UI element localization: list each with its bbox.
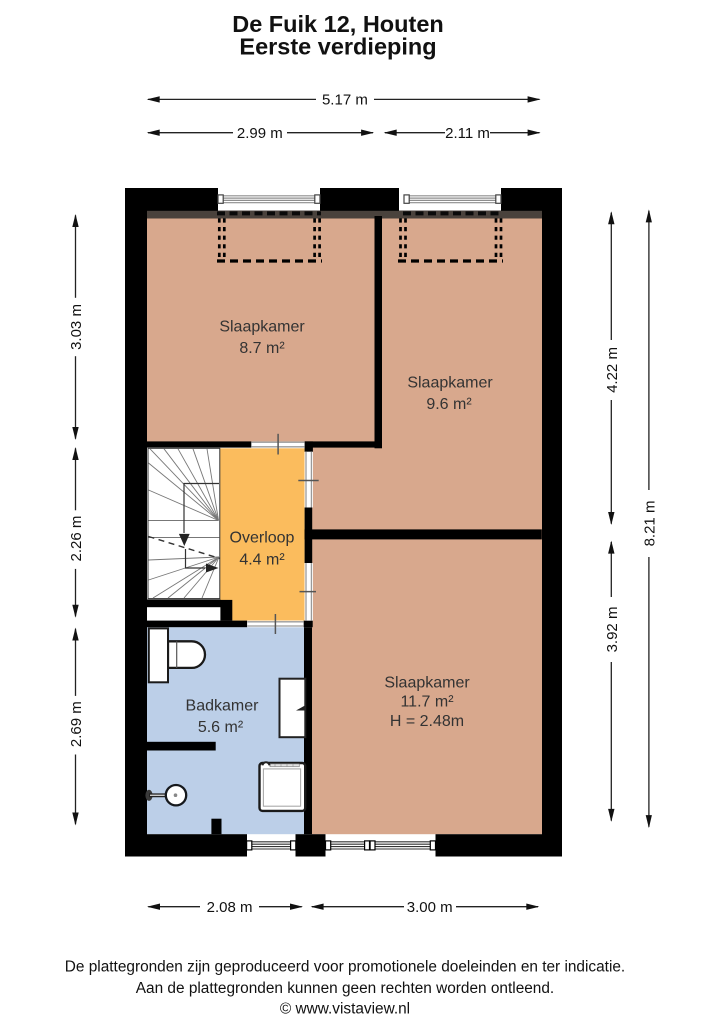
svg-text:3.92 m: 3.92 m bbox=[604, 607, 621, 653]
svg-text:9.6 m²: 9.6 m² bbox=[426, 396, 472, 413]
svg-text:4.4 m²: 4.4 m² bbox=[239, 552, 285, 569]
svg-text:Badkamer: Badkamer bbox=[186, 698, 260, 715]
svg-text:3.03 m: 3.03 m bbox=[68, 304, 85, 350]
svg-text:2.69 m: 2.69 m bbox=[68, 701, 85, 747]
svg-text:11.7 m²: 11.7 m² bbox=[400, 694, 454, 711]
svg-text:Slaapkamer: Slaapkamer bbox=[407, 375, 493, 392]
svg-text:8.7 m²: 8.7 m² bbox=[239, 340, 285, 357]
svg-text:H = 2.48m: H = 2.48m bbox=[390, 713, 464, 730]
svg-text:2.99 m: 2.99 m bbox=[237, 125, 283, 142]
svg-text:8.21 m: 8.21 m bbox=[641, 501, 658, 547]
svg-text:3.00 m: 3.00 m bbox=[407, 899, 453, 916]
svg-text:Aan de plattegronden kunnen ge: Aan de plattegronden kunnen geen rechten… bbox=[136, 980, 554, 997]
svg-text:© www.vistaview.nl: © www.vistaview.nl bbox=[280, 1001, 410, 1018]
svg-text:2.26 m: 2.26 m bbox=[68, 516, 85, 562]
svg-text:Eerste verdieping: Eerste verdieping bbox=[239, 34, 436, 60]
svg-text:De plattegronden zijn geproduc: De plattegronden zijn geproduceerd voor … bbox=[65, 959, 625, 976]
svg-text:Overloop: Overloop bbox=[230, 530, 295, 547]
svg-text:4.22 m: 4.22 m bbox=[604, 347, 621, 393]
svg-text:5.6 m²: 5.6 m² bbox=[198, 719, 244, 736]
svg-text:Slaapkamer: Slaapkamer bbox=[384, 675, 470, 692]
svg-text:2.08 m: 2.08 m bbox=[207, 899, 253, 916]
svg-text:5.17 m: 5.17 m bbox=[322, 92, 368, 109]
svg-text:Slaapkamer: Slaapkamer bbox=[219, 319, 305, 336]
svg-text:2.11 m: 2.11 m bbox=[445, 125, 490, 142]
